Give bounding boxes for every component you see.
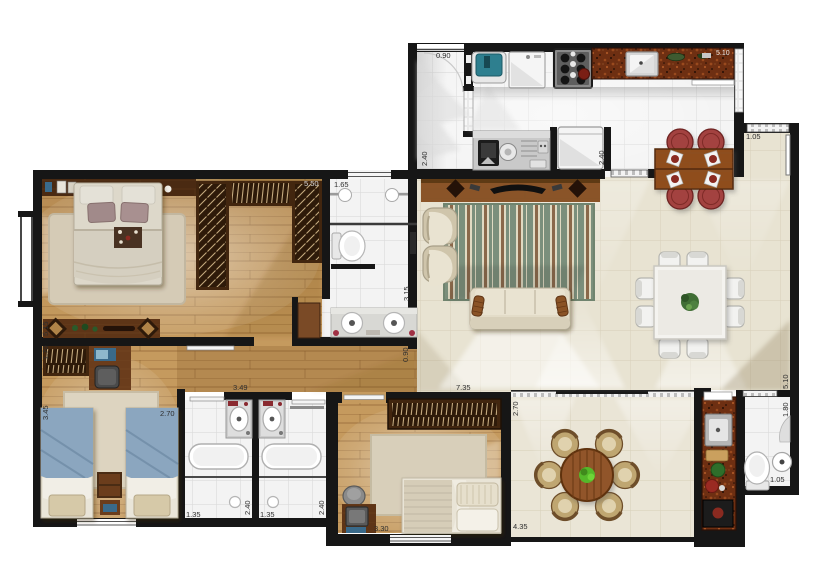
svg-text:1.35: 1.35	[186, 510, 201, 519]
svg-text:2.40: 2.40	[243, 500, 252, 515]
svg-text:2.70: 2.70	[160, 409, 175, 418]
svg-text:1.05: 1.05	[770, 475, 785, 484]
svg-text:5.10: 5.10	[716, 50, 730, 57]
svg-text:2.70: 2.70	[511, 401, 520, 416]
svg-text:7.35: 7.35	[456, 383, 471, 392]
svg-text:2.40: 2.40	[317, 500, 326, 515]
svg-text:4.35: 4.35	[513, 522, 528, 531]
svg-text:5.50: 5.50	[304, 179, 319, 188]
svg-text:5.10: 5.10	[781, 374, 790, 389]
svg-text:1.05: 1.05	[746, 132, 761, 141]
svg-text:3.45: 3.45	[41, 405, 50, 420]
svg-text:2.40: 2.40	[420, 151, 429, 166]
svg-text:3.49: 3.49	[233, 383, 248, 392]
svg-text:1.65: 1.65	[334, 180, 349, 189]
svg-text:5.15: 5.15	[41, 321, 50, 336]
svg-text:1.80: 1.80	[781, 402, 790, 417]
svg-text:1.35: 1.35	[260, 510, 275, 519]
svg-text:2.40: 2.40	[597, 150, 606, 165]
svg-text:3.30: 3.30	[374, 524, 389, 533]
svg-text:0.90: 0.90	[401, 347, 410, 362]
svg-text:1.70: 1.70	[41, 345, 50, 360]
svg-text:0.90: 0.90	[436, 51, 451, 60]
svg-text:3.15: 3.15	[402, 286, 411, 301]
